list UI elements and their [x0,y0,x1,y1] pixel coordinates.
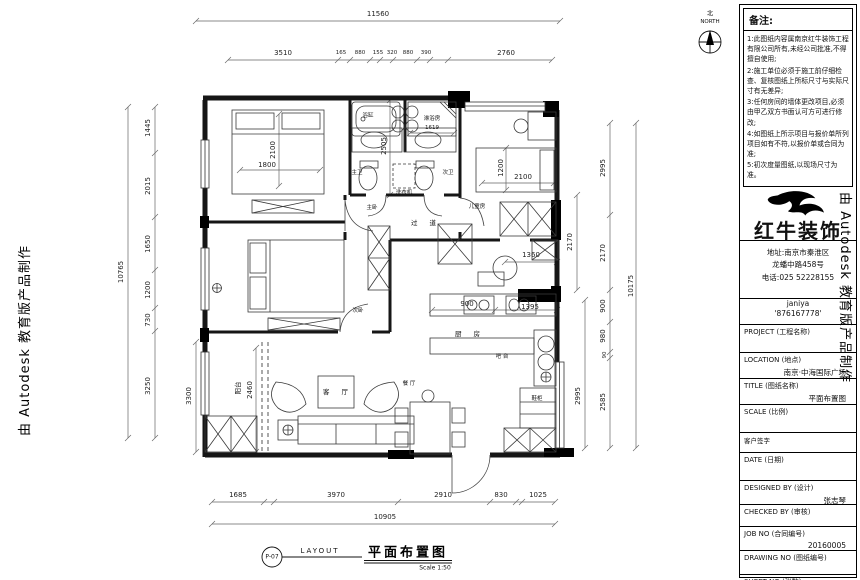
footer-scale: Scale 1:50 [419,565,451,572]
dim-right-1: 2995 [599,159,607,177]
dim-bottom-2: 3970 [327,491,345,499]
autodesk-watermark-left: 由 Autodesk 教育版产品制作 [14,245,33,436]
dim-right-2: 2170 [599,244,607,262]
field-designed-by: DESIGNED BY (设计) 张志琴 [740,480,856,504]
room-label-living: 客 厅 [323,386,353,396]
room-label-second-bath: 次卫 [442,168,453,176]
project-label: PROJECT (工程名称) [744,327,852,337]
floorplan-linework [0,0,860,580]
designed-by-label: DESIGNED BY (设计) [744,483,852,493]
dim-top-8: 2760 [497,49,515,57]
field-client-sign: 客户签字 [740,432,856,452]
field-scale: SCALE (比例) [740,404,856,432]
dim-kids-bed-2: 2100 [514,173,532,181]
bull-logo-icon [761,191,835,217]
room-label-washer: 洗衣机 [396,188,413,196]
footer-drawing-ref: P-07 [265,554,278,561]
dim-kitchen-1: 1360 [522,251,540,259]
client-sign-label: 客户签字 [744,435,852,445]
dim-bottom-3: 2910 [434,491,452,499]
room-label-shower: 淋浴房 [424,114,441,122]
dim-bottom-5: 1025 [529,491,547,499]
dim-top-total: 11560 [367,10,389,18]
dim-top-2: 165 [336,50,347,56]
dim-left-2: 2015 [144,177,152,195]
note-item: 3:任何房间的墙体更改项目,必须由甲乙双方书面认可方可进行修改; [747,97,849,128]
dim-left-total: 10765 [117,261,125,283]
sliding-door [262,342,268,453]
footer-plan-title: 平面布置图 [368,542,448,561]
checked-by-label: CHECKED BY (审核) [744,507,852,517]
note-item: 2:施工单位必须于施工前仔细检查、复核图纸上所标尺寸与实际尺寸有无差异; [747,66,849,97]
dim-bottom-total: 10905 [374,513,396,521]
location-label: LOCATION (地点) [744,355,852,365]
room-label-kitchen: 厨 房 [455,328,485,338]
dim-right-3: 900 [599,299,607,312]
dim-kids-bed-1: 1200 [497,159,505,177]
field-checked-by: CHECKED BY (审核) [740,504,856,526]
field-drawing-no: DRAWING NO (图纸编号) [740,550,856,574]
sheet-no-label: SHEET NO (张数) [744,577,852,580]
room-label-master-bath: 主卫 [351,168,362,176]
notes-box: 备注: 1:此图纸内容属南京红牛装饰工程有限公司所有,未经公司批准,不得擅自使用… [743,8,853,187]
room-label-kids-room: 儿童房 [469,202,486,210]
room-label-dining: 餐 厅 [403,379,416,387]
dim-top-5: 320 [387,50,398,56]
dim-left-6: 3250 [144,377,152,395]
cabinets-x [205,202,558,452]
room-label-balcony: 阳台 [232,382,242,395]
dim-bath-2: 1619 [425,125,439,131]
location-value: 南京·中海国际广场 [744,367,852,378]
dim-kitchen-3: 1395 [521,303,539,311]
dim-master-bed-1: 2100 [269,141,277,159]
dim-right-4: 980 [599,329,607,342]
scale-label: SCALE (比例) [744,407,852,417]
room-label-master-bedroom: 主卧 [366,203,377,211]
drawing-no-label: DRAWING NO (图纸编号) [744,553,852,563]
dim-right-inner-2: 2995 [574,387,582,405]
dim-top-1: 3510 [274,49,292,57]
dim-top-6: 880 [403,50,414,56]
note-item: 1:此图纸内容属南京红牛装饰工程有限公司所有,未经公司批准,不得擅自使用; [747,34,849,65]
dim-top-4: 155 [373,50,384,56]
title-value: 平面布置图 [744,393,852,404]
dim-bottom-4: 830 [494,491,507,499]
job-no-label: JOB NO (合同编号) [744,529,852,539]
dim-left-4: 1200 [144,281,152,299]
note-item: 5:初次度量图纸,以现场尺寸为准。 [747,160,849,180]
dim-right-inner-1: 2170 [566,233,574,251]
note-item: 4:如图纸上所示项目与报价单所列项目如有不符,以报价单或合同为准; [747,129,849,160]
north-arrow [699,30,721,53]
notes-title: 备注: [744,9,852,31]
footer-layout-label: LAYOUT [300,547,339,555]
autodesk-watermark-right: 由 Autodesk 教育版产品制作 [837,192,856,383]
dim-left-5: 730 [144,313,152,326]
north-label-en: NORTH [700,19,719,25]
dim-left-3: 1650 [144,235,152,253]
field-sheet-no: SHEET NO (张数) [740,574,856,580]
field-date: DATE (日期) [740,452,856,480]
dim-bottom-1: 1685 [229,491,247,499]
dim-right-5: 90 [602,352,608,359]
dim-right-6: 2585 [599,393,607,411]
dim-kitchen-2: 900 [460,300,473,308]
dim-master-bed-2: 1800 [258,161,276,169]
dim-bath-1: 2505 [380,137,388,155]
room-label-bar: 吧 台 [496,352,509,360]
cad-sheet: 11560 3510 165 880 155 320 880 390 2760 … [0,0,860,580]
dim-top-3: 880 [355,50,366,56]
room-label-bathtub: 浴缸 [362,111,373,119]
dim-right-total: 10175 [627,275,635,297]
room-label-corridor: 过 道 [411,217,441,227]
field-job-no: JOB NO (合同编号) 20160005 [740,526,856,550]
dim-balcony: 2460 [246,381,254,399]
dim-left-1: 1445 [144,119,152,137]
notes-list: 1:此图纸内容属南京红牛装饰工程有限公司所有,未经公司批准,不得擅自使用; 2:… [744,31,852,186]
job-no-value: 20160005 [744,541,852,550]
north-label-cn: 北 [707,9,713,18]
room-label-second-bedroom: 次卧 [352,306,363,314]
dim-left-inner: 3300 [185,387,193,405]
date-label: DATE (日期) [744,455,852,465]
room-label-shoe-cabinet: 鞋柜 [531,394,542,402]
dim-top-7: 390 [421,50,432,56]
title-label: TITLE (图纸名称) [744,381,852,391]
